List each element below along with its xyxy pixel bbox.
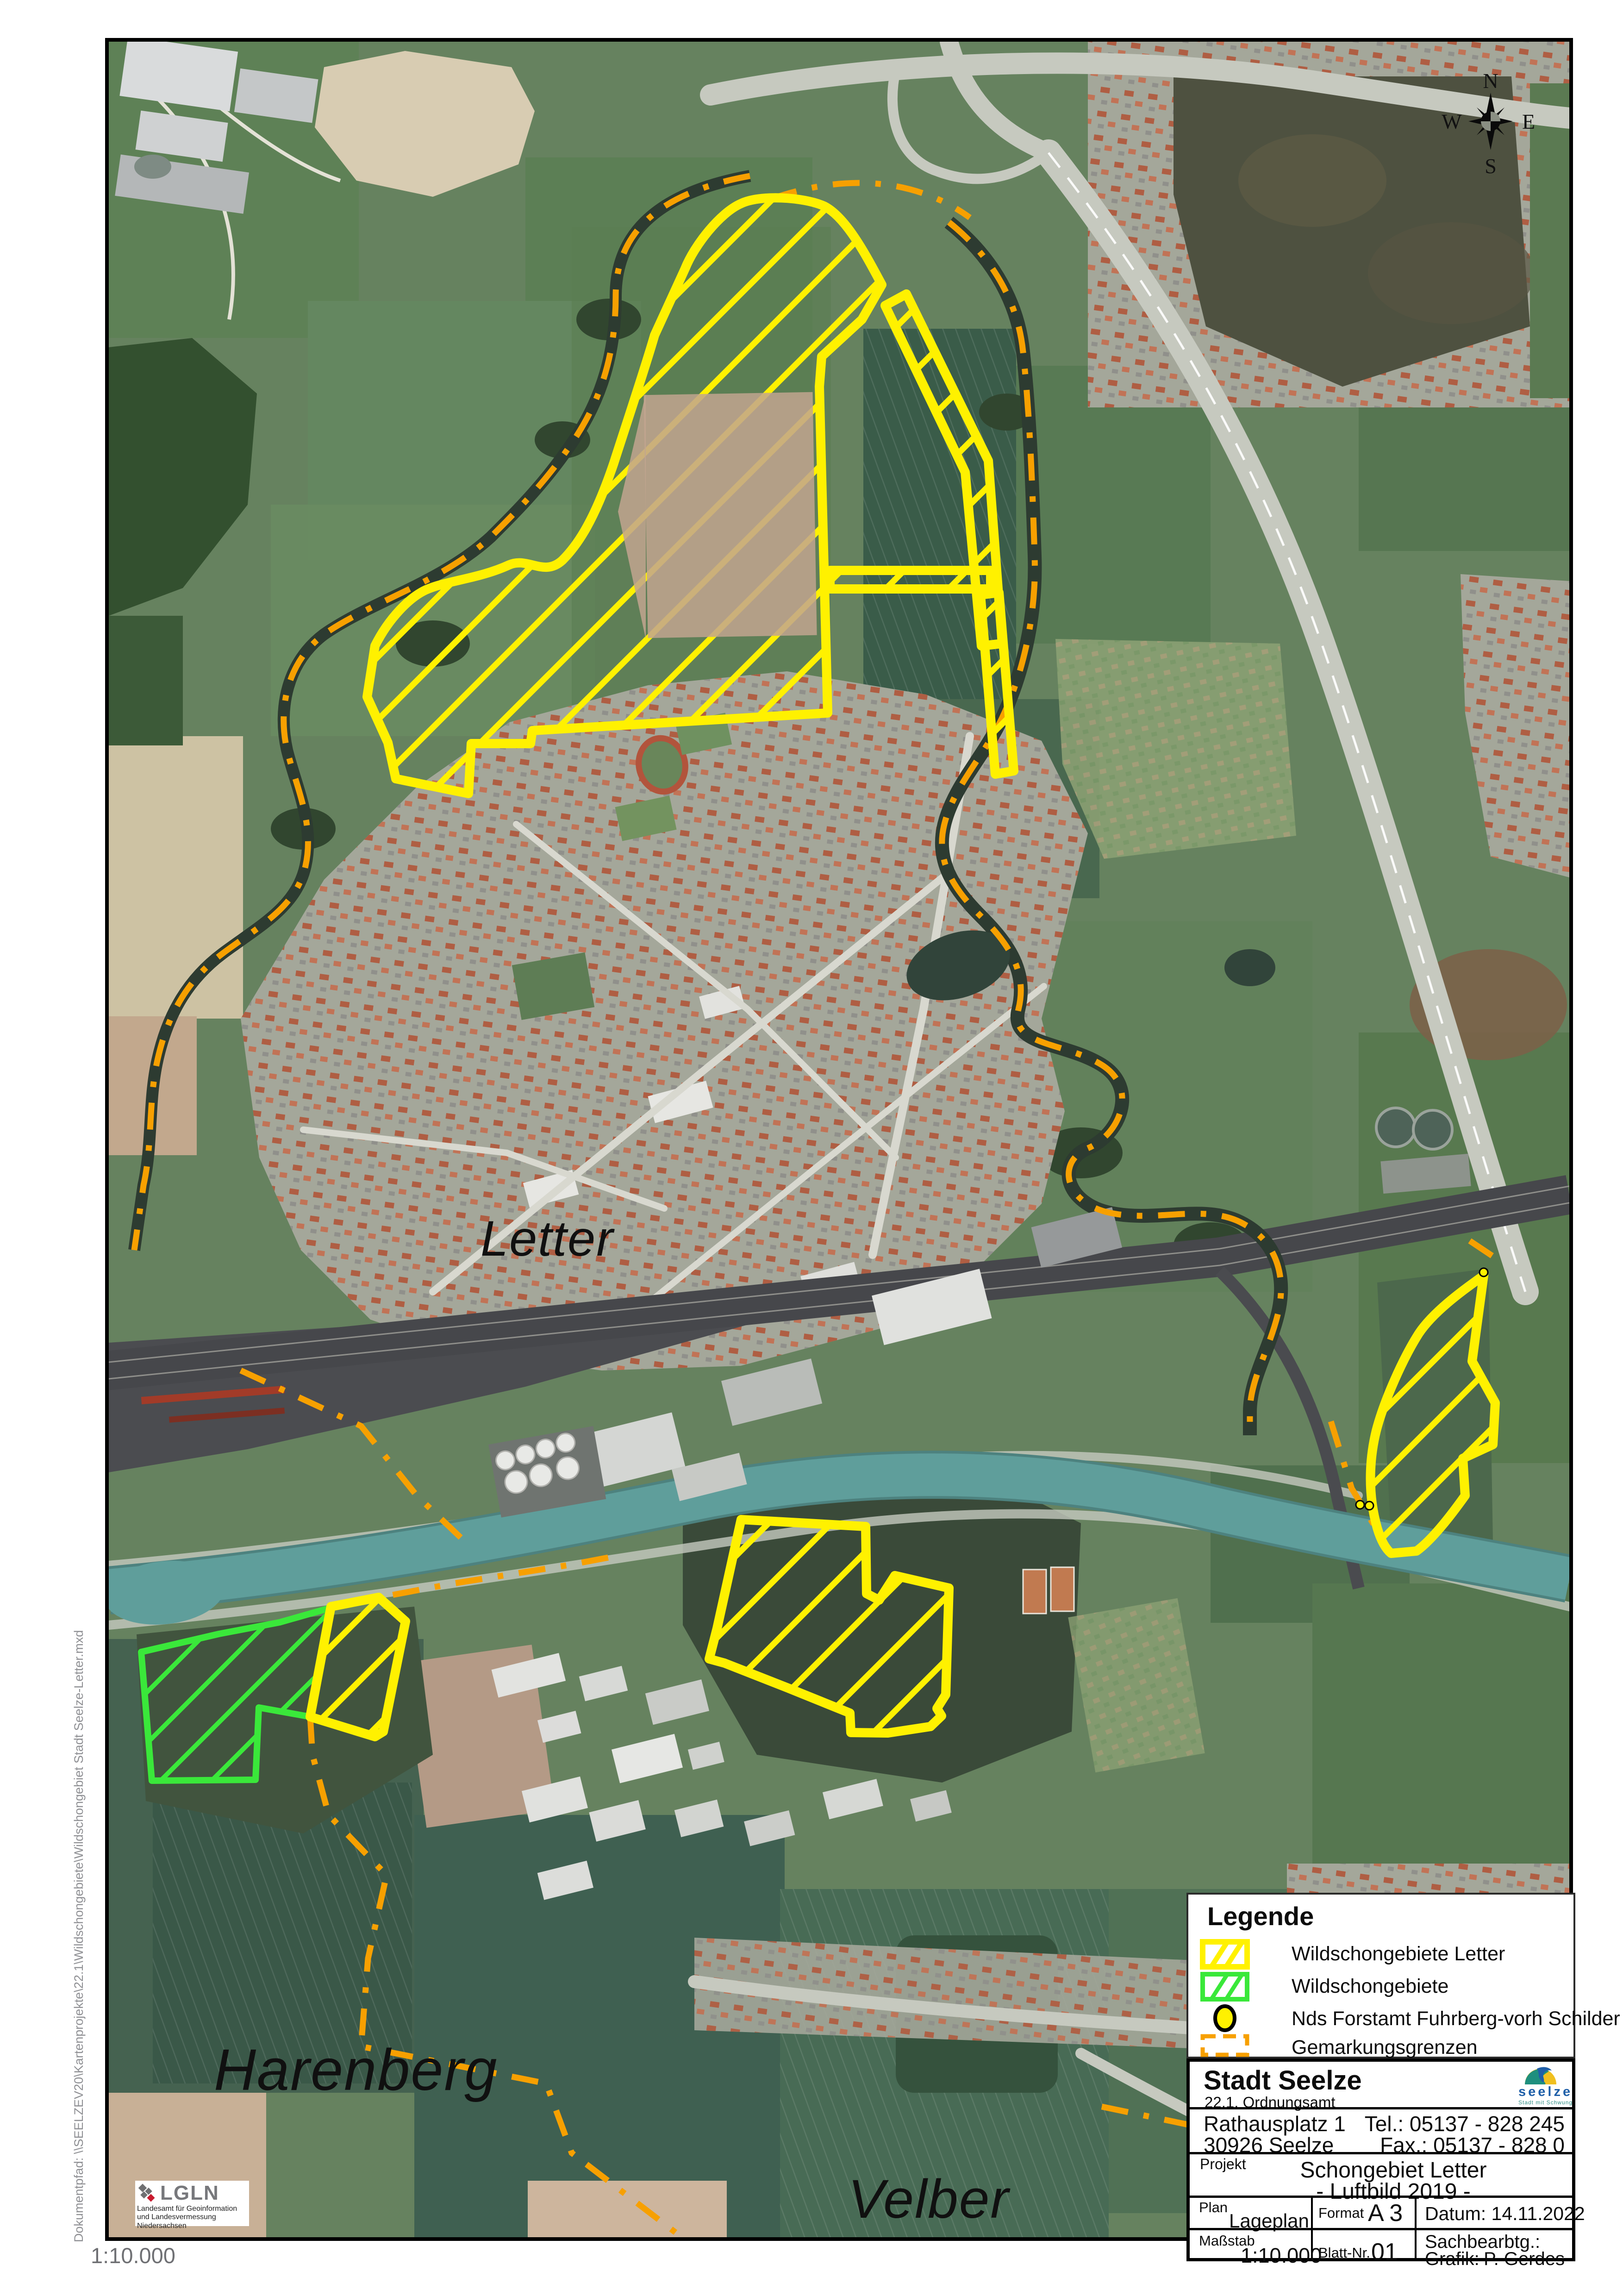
title-block-org: Stadt Seelze: [1204, 2065, 1362, 2096]
title-block-datum: Datum: 14.11.2022: [1425, 2203, 1585, 2225]
lgln-line1: Landesamt für Geoinformation: [137, 2205, 247, 2213]
lgln-line2: und Landesvermessung Niedersachsen: [137, 2213, 247, 2230]
title-block-plan-label: Plan: [1199, 2199, 1228, 2216]
legend-swatch-wildschongebiete-icon: [1198, 1971, 1254, 2002]
place-label-letter: Letter: [481, 1209, 614, 1267]
document-path-vertical-text: Dokumentpfad: \\SEELZEV20\Kartenprojekte…: [72, 1630, 86, 2242]
compass-e-label: E: [1522, 110, 1535, 133]
place-label-velber: Velber: [848, 2168, 1010, 2231]
title-block-grafik-label: Grafik:: [1425, 2249, 1479, 2270]
compass-s-label: S: [1485, 154, 1497, 178]
legend-item-wildschongebiete: Wildschongebiete: [1292, 1975, 1448, 1998]
title-block-blatt-label: Blatt-Nr.: [1318, 2245, 1370, 2261]
legend-swatch-forstamt-marker-icon: [1198, 2002, 1254, 2034]
lgln-logo-icon: [137, 2183, 157, 2203]
seelze-logo-name: seelze: [1518, 2084, 1573, 2100]
legend-title: Legende: [1207, 1901, 1314, 1931]
title-block-grafik-value: P. Gerdes: [1481, 2249, 1565, 2270]
title-block-projekt-label: Projekt: [1200, 2156, 1246, 2173]
legend-swatch-wildschongebiete-letter-icon: [1198, 1939, 1254, 1970]
compass-w-label: W: [1442, 110, 1462, 133]
scale-note: 1:10.000: [91, 2243, 175, 2268]
legend-item-forstamt-schilder: Nds Forstamt Fuhrberg-vorh Schilder: [1292, 2008, 1620, 2030]
legend-item-wildschongebiete-letter: Wildschongebiete Letter: [1292, 1943, 1505, 1965]
seelze-logo-icon: [1517, 2062, 1563, 2085]
seelze-logo-tagline: Stadt mit Schwung: [1518, 2099, 1573, 2106]
title-block-massstab-value: 1:10.000: [1241, 2244, 1322, 2268]
legend-item-gemarkungsgrenzen: Gemarkungsgrenzen: [1292, 2036, 1478, 2059]
map-sheet-page: Dokumentpfad: \\SEELZEV20\Kartenprojekte…: [0, 0, 1623, 2296]
title-block-format-label: Format: [1318, 2205, 1364, 2221]
lgln-attribution: LGLN Landesamt für Geoinformation und La…: [135, 2181, 249, 2226]
legend-swatch-gemarkungsgrenzen-icon: [1198, 2033, 1254, 2058]
title-block-blatt-value: 01: [1371, 2238, 1398, 2266]
title-block-format-value: A 3: [1368, 2199, 1403, 2227]
compass-n-label: N: [1483, 69, 1498, 93]
lgln-abbr: LGLN: [160, 2182, 219, 2205]
place-label-harenberg: Harenberg: [214, 2036, 498, 2103]
